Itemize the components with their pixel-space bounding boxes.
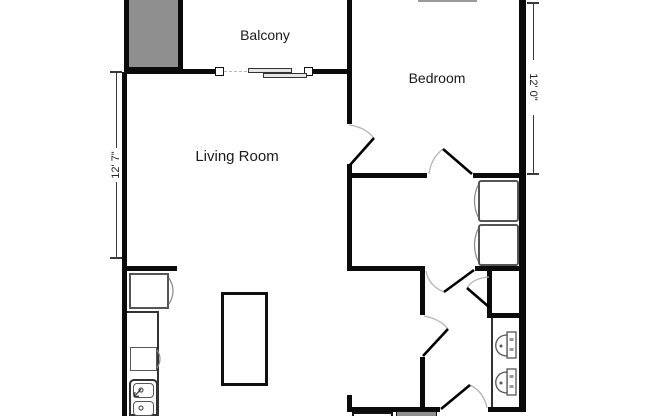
- bathroom-sink-icon: [496, 369, 516, 395]
- wall-segment: [347, 266, 425, 271]
- floor-plan-canvas: Balcony Bedroom Living Room 12' 7" 12' 0…: [0, 0, 652, 416]
- stove-icon: [130, 347, 157, 371]
- wall-segment: [122, 72, 127, 416]
- kitchen-island-icon: [221, 292, 268, 386]
- wall-segment: [420, 271, 425, 315]
- dryer-icon: [478, 224, 519, 266]
- wall-segment: [519, 0, 526, 412]
- bathroom-sink-icon: [496, 332, 516, 358]
- wall-segment: [312, 69, 352, 74]
- bedroom-entry-door: [349, 125, 374, 165]
- partial-structure: [352, 412, 393, 416]
- wall-segment: [347, 173, 427, 178]
- wall-segment: [420, 357, 425, 412]
- wall-segment: [473, 173, 526, 178]
- room-label-living-room: Living Room: [177, 148, 297, 165]
- wall-segment: [487, 271, 492, 317]
- window-edge: [418, 0, 477, 2]
- washer-icon: [478, 180, 519, 222]
- counter-edge: [127, 311, 159, 313]
- sliding-door-panel-icon: [263, 73, 307, 78]
- wall-segment: [488, 407, 526, 412]
- hall-closet-door: [467, 277, 489, 307]
- bottom-entry-door: [441, 385, 487, 409]
- partial-doorway: [396, 411, 437, 416]
- bedroom-closet-door: [429, 149, 472, 174]
- dimension-right-value: 12' 0": [526, 57, 540, 117]
- doors-and-fixtures-overlay: [0, 0, 652, 416]
- sink-basin-icon: [133, 401, 154, 416]
- sliding-door-jamb-left: [215, 67, 224, 76]
- wall-segment: [127, 266, 177, 271]
- refrigerator-icon: [129, 273, 169, 309]
- wall-segment: [347, 0, 352, 124]
- sink-basin-icon: [133, 383, 154, 398]
- shaded-area-top-left: [124, 0, 183, 72]
- room-label-bedroom: Bedroom: [387, 70, 487, 86]
- wall-segment: [475, 266, 526, 271]
- wall-segment: [124, 69, 216, 74]
- wall-segment: [347, 178, 352, 271]
- room-label-balcony: Balcony: [215, 27, 315, 43]
- bathroom-door: [423, 316, 448, 356]
- refrigerator-door-arc: [169, 278, 173, 304]
- laundry-room-door: [426, 270, 474, 292]
- vanity-edge: [491, 318, 493, 407]
- wall-segment: [347, 395, 352, 407]
